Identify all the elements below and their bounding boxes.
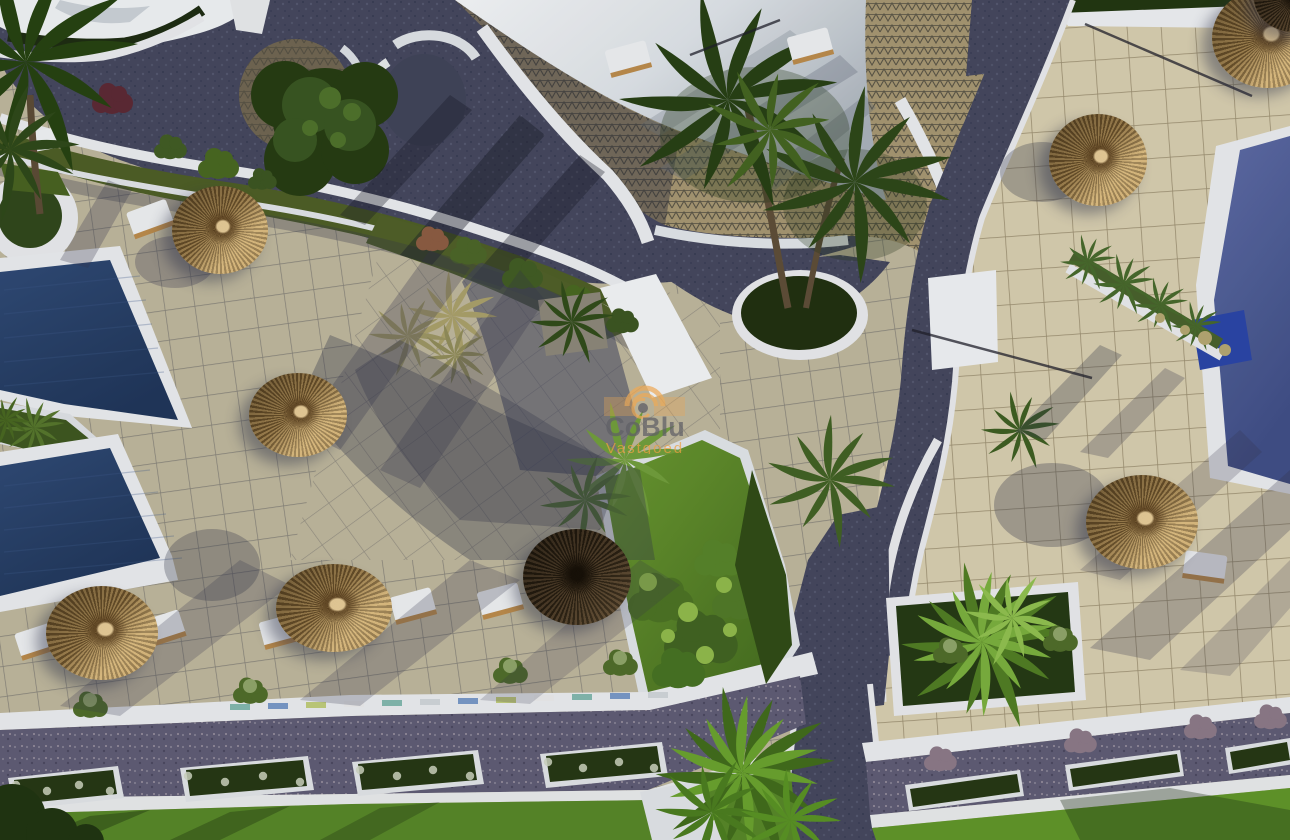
- svg-text:Vastgoed: Vastgoed: [606, 440, 684, 454]
- svg-text:CoBlu: CoBlu: [605, 412, 684, 442]
